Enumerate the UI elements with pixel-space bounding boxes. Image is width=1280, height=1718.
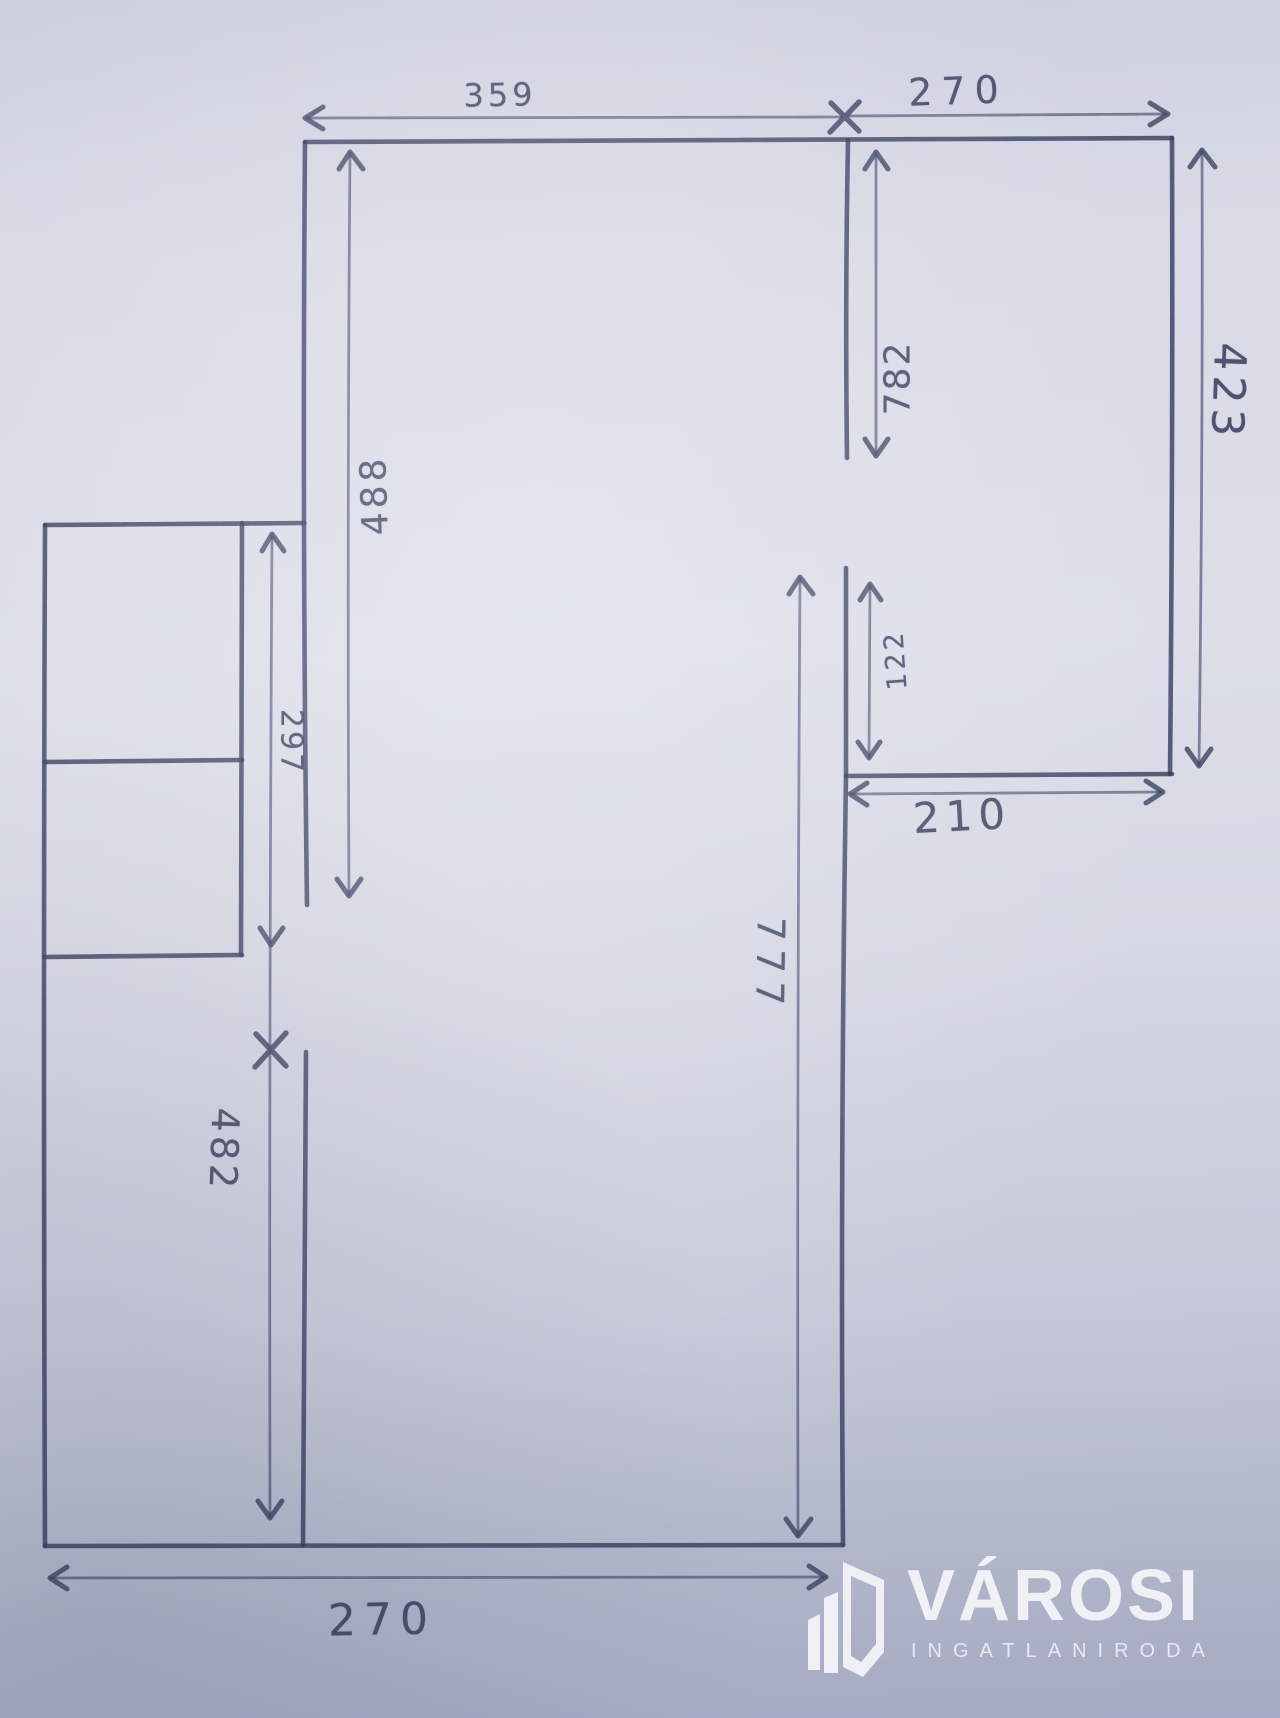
dim-line — [51, 1577, 825, 1578]
wall-right-room-bottom — [846, 774, 1172, 776]
dim-line — [348, 153, 350, 895]
wall-small-room-right — [241, 523, 242, 955]
dim-line — [869, 585, 870, 757]
wall-small-room-top — [45, 523, 305, 525]
wall-right — [1170, 138, 1172, 774]
building-bar-medium — [824, 1592, 838, 1673]
dim-label-nook-width: 210 — [912, 789, 1013, 843]
dim-line — [270, 535, 272, 1517]
dimension-lines — [50, 102, 1215, 1589]
dim-label-small-room-height: 297 — [274, 709, 309, 775]
dim-label-bottom-width: 270 — [328, 1594, 437, 1647]
dim-bottom-width — [50, 1566, 826, 1589]
dim-top-width-left — [305, 107, 842, 129]
building-tower — [843, 1562, 884, 1677]
dim-label-main-room-height: 777 — [747, 916, 793, 1013]
walls — [44, 138, 1172, 1546]
wall-bottom — [45, 1545, 843, 1546]
wall-small-room-bottom — [45, 955, 242, 957]
dim-main-room-height — [786, 577, 813, 1536]
wall-top — [305, 138, 1172, 142]
floorplan-photo: 359 270 423 782 122 210 777 488 297 482 … — [0, 0, 1280, 1718]
wall-main-left-lower — [303, 1052, 306, 1545]
floorplan-sketch — [0, 0, 1280, 1718]
dim-nook-height — [858, 584, 881, 758]
dim-line — [1199, 151, 1202, 765]
dim-line — [798, 578, 800, 1535]
dim-line — [848, 114, 1166, 116]
wall-outer-left — [44, 525, 45, 1546]
wall-small-room-divider — [45, 760, 242, 762]
watermark-title: VÁROSI — [907, 1560, 1201, 1632]
dim-label-top-width-left: 359 — [463, 75, 537, 114]
wall-main-room-right — [842, 776, 846, 1545]
dim-label-right-wall-upper: 782 — [878, 341, 919, 416]
dim-label-nook-height: 122 — [878, 629, 913, 692]
building-bar-small — [808, 1614, 820, 1670]
dim-line — [307, 117, 842, 118]
dim-right-room-height — [1187, 150, 1215, 766]
dim-label-left-room-height: 488 — [353, 454, 397, 536]
wall-center-upper — [846, 140, 848, 458]
building-icon — [795, 1552, 905, 1687]
dim-label-right-room-height: 423 — [1201, 342, 1255, 443]
dim-label-top-width-right: 270 — [907, 67, 1008, 114]
watermark-subtitle: INGATLANIRODA — [911, 1640, 1216, 1663]
dim-small-room-and-lower-left — [255, 534, 286, 1518]
dim-label-lower-left-height: 482 — [201, 1107, 248, 1193]
varosi-watermark: VÁROSI INGATLANIRODA — [795, 1552, 1265, 1692]
